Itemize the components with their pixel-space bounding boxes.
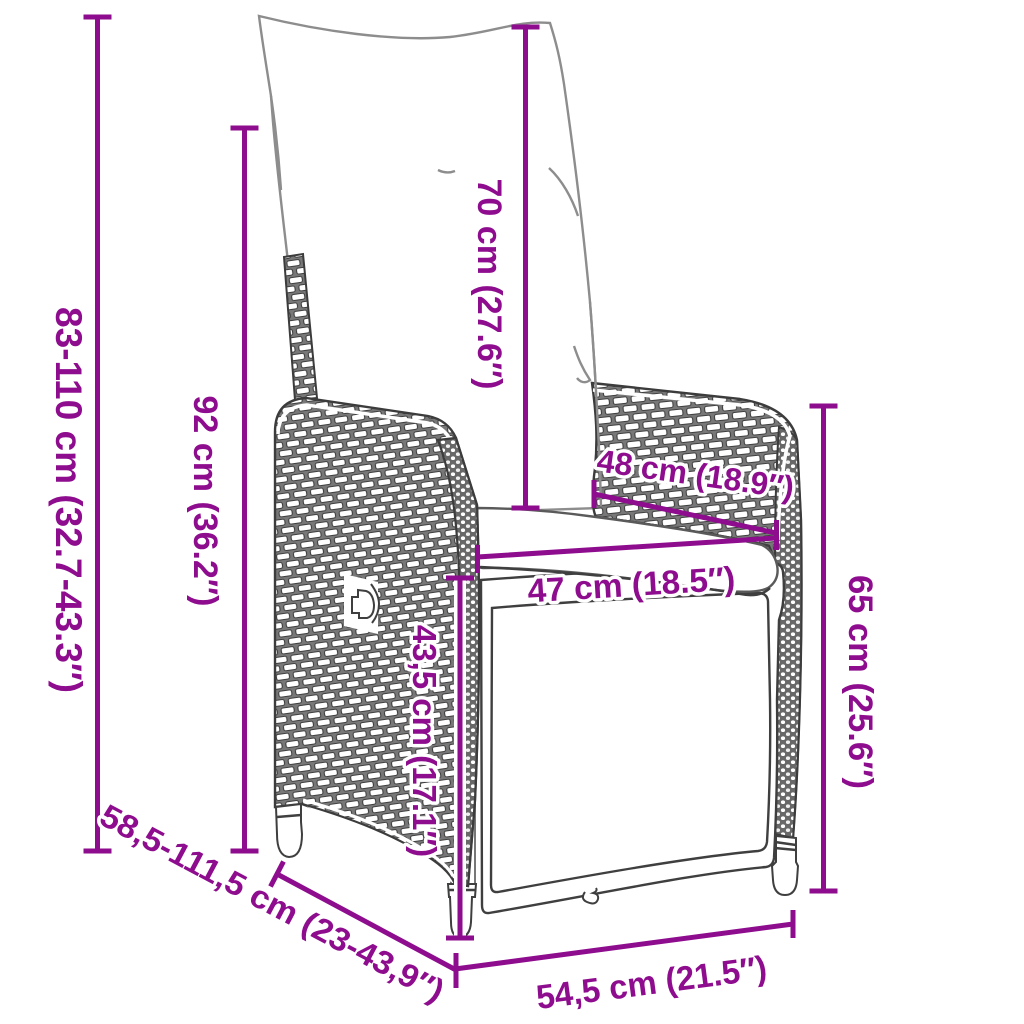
svg-text:43,5 cm (17.1″): 43,5 cm (17.1″) [406,625,443,857]
svg-text:70 cm (27.6″): 70 cm (27.6″) [470,179,508,390]
svg-text:92 cm (36.2″): 92 cm (36.2″) [186,396,224,607]
svg-text:65 cm (25.6″): 65 cm (25.6″) [841,575,879,789]
svg-text:83-110 cm (32.7-43.3″): 83-110 cm (32.7-43.3″) [48,307,89,693]
